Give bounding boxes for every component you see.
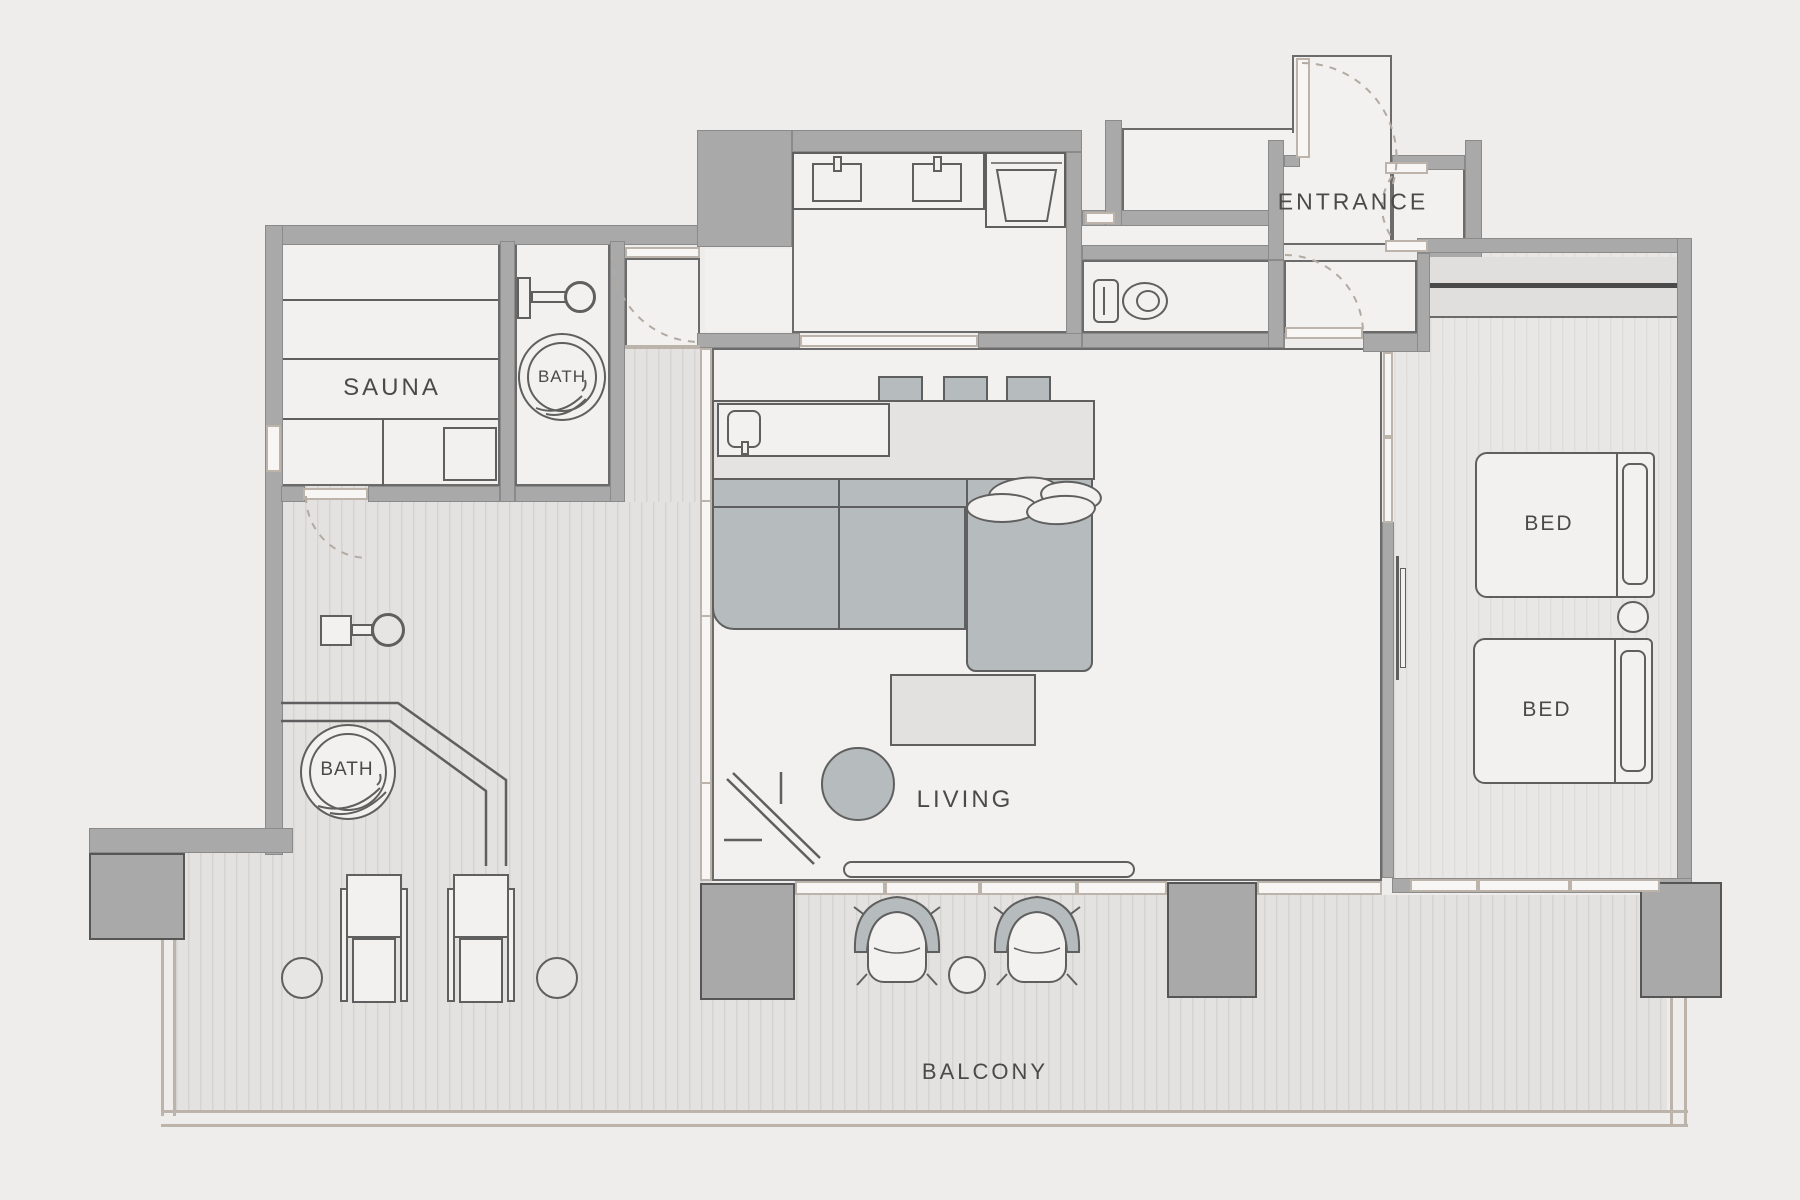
bath-label: BATH (320, 759, 373, 781)
corridor-strip-floor (1082, 226, 1270, 245)
pillar (89, 853, 185, 940)
pillar-band-left (89, 828, 293, 853)
wall-sauna-right (500, 241, 515, 502)
balcony-railing (161, 1124, 1688, 1127)
shower-head-icon (564, 281, 596, 313)
sofa-divider (838, 480, 840, 628)
wall-wc-top (1082, 245, 1284, 260)
wall-vanity-block (697, 130, 792, 247)
glass-wall-mullion (700, 500, 712, 502)
balcony-table (948, 956, 986, 994)
tv-bench (843, 861, 1135, 878)
window-sill (1478, 879, 1570, 892)
lounge-chair-seat (352, 938, 396, 1003)
window-sill (266, 425, 281, 472)
sauna-divider-line (382, 418, 384, 486)
toilet-bowl-inner (1136, 290, 1160, 312)
wall-bedroom-partition (1382, 522, 1394, 878)
door-leaf (1285, 327, 1363, 339)
wall-bedroom-right (1677, 238, 1692, 893)
sliding-door (1383, 437, 1393, 523)
side-table (281, 957, 323, 999)
faucet-icon (833, 156, 842, 172)
wall-top-left (265, 225, 702, 245)
kitchen-faucet-icon (741, 441, 749, 455)
door-sill (800, 335, 978, 347)
wall-shower-room-bottom (515, 486, 625, 502)
wall-living-top (978, 333, 1082, 348)
faucet-icon (933, 156, 942, 172)
floor-plan: SAUNA BATH BATH ENTRANCE LIVING BED BED … (0, 0, 1800, 1200)
door-sill (1385, 240, 1428, 252)
stool (878, 376, 923, 402)
door-sill (625, 247, 700, 258)
sauna-bench-line (283, 418, 498, 420)
vestibule-floor (625, 258, 700, 348)
wall-vanity-top (792, 130, 1082, 152)
bed-divider (1614, 638, 1616, 784)
wall-sauna-bottom (281, 486, 305, 502)
wall-left (265, 225, 283, 855)
entrance-door-leaf (1296, 58, 1310, 158)
window-sill (1410, 879, 1478, 892)
side-table (536, 957, 578, 999)
washer-niche (985, 152, 1066, 228)
bed-divider (1616, 452, 1618, 598)
window-sill (1257, 881, 1382, 895)
terrace-threshold (625, 345, 700, 349)
pillar (1640, 882, 1722, 998)
pillar (700, 883, 795, 1000)
entrance-label: ENTRANCE (1278, 189, 1429, 216)
balcony-railing (1670, 998, 1673, 1127)
wall-living-top (1082, 333, 1285, 348)
stool (1006, 376, 1051, 402)
terrace-strip-floor (610, 348, 712, 502)
pillar (1167, 882, 1257, 998)
window-sill (885, 881, 980, 895)
shower-valve-icon (320, 615, 352, 646)
toilet-tank-line (1103, 287, 1105, 315)
sauna-stove (443, 427, 497, 481)
window-sill (1570, 879, 1660, 892)
living-label: LIVING (917, 786, 1014, 814)
wall-bedroom-left-upper (1417, 253, 1430, 352)
sauna-bench-line (283, 299, 498, 301)
wall-wc-right (1268, 260, 1284, 348)
lounge-chair-back (346, 874, 402, 938)
bed-label: BED (1524, 512, 1573, 536)
tv-icon (1400, 568, 1406, 668)
wall-vanity-right (1066, 152, 1082, 348)
balcony-railing (161, 940, 164, 1116)
pouf (821, 747, 895, 821)
sauna-bench-line (283, 358, 498, 360)
toilet-tank-icon (1093, 279, 1119, 323)
nightstand (1617, 601, 1649, 633)
window-sill (1077, 881, 1167, 895)
stool (943, 376, 988, 402)
hall-floor (1284, 260, 1417, 333)
shower-head-icon (371, 613, 405, 647)
tv-icon (1396, 556, 1399, 680)
shower-arm-icon (351, 624, 373, 636)
wall-sauna-bottom (368, 486, 500, 502)
door-sill (303, 488, 368, 500)
glass-wall-mullion (700, 615, 712, 617)
door-sill (1385, 162, 1428, 174)
wall-bedroom-top (1417, 238, 1692, 253)
window-sill (980, 881, 1077, 895)
balcony-floor-left (176, 853, 281, 1110)
closet-rod (1430, 283, 1677, 288)
balcony-railing (161, 1110, 1688, 1113)
coffee-table (890, 674, 1036, 746)
balcony-label: BALCONY (922, 1059, 1048, 1085)
wall-entrance-nib (1105, 120, 1122, 226)
lounge-chair-seat (459, 938, 503, 1003)
balcony-railing (1684, 998, 1687, 1127)
bed-label: BED (1522, 698, 1571, 722)
lounge-chair-back (453, 874, 509, 938)
shower-valve-icon (517, 277, 531, 319)
bed-pillow (1622, 463, 1648, 585)
bath-label: BATH (538, 367, 586, 387)
window-sill (795, 881, 885, 895)
wall-shower-room-right (610, 241, 625, 502)
shower-arm-icon (531, 291, 567, 303)
vanity-room-floor (705, 249, 792, 331)
door-sill (1085, 212, 1115, 224)
bed-pillow (1620, 650, 1646, 772)
sauna-label: SAUNA (343, 374, 441, 402)
sofa-chaise (966, 506, 1093, 672)
wall-living-top (697, 333, 800, 348)
glass-wall-mullion (700, 782, 712, 784)
balcony-railing (173, 940, 176, 1116)
sliding-door (1383, 352, 1393, 437)
